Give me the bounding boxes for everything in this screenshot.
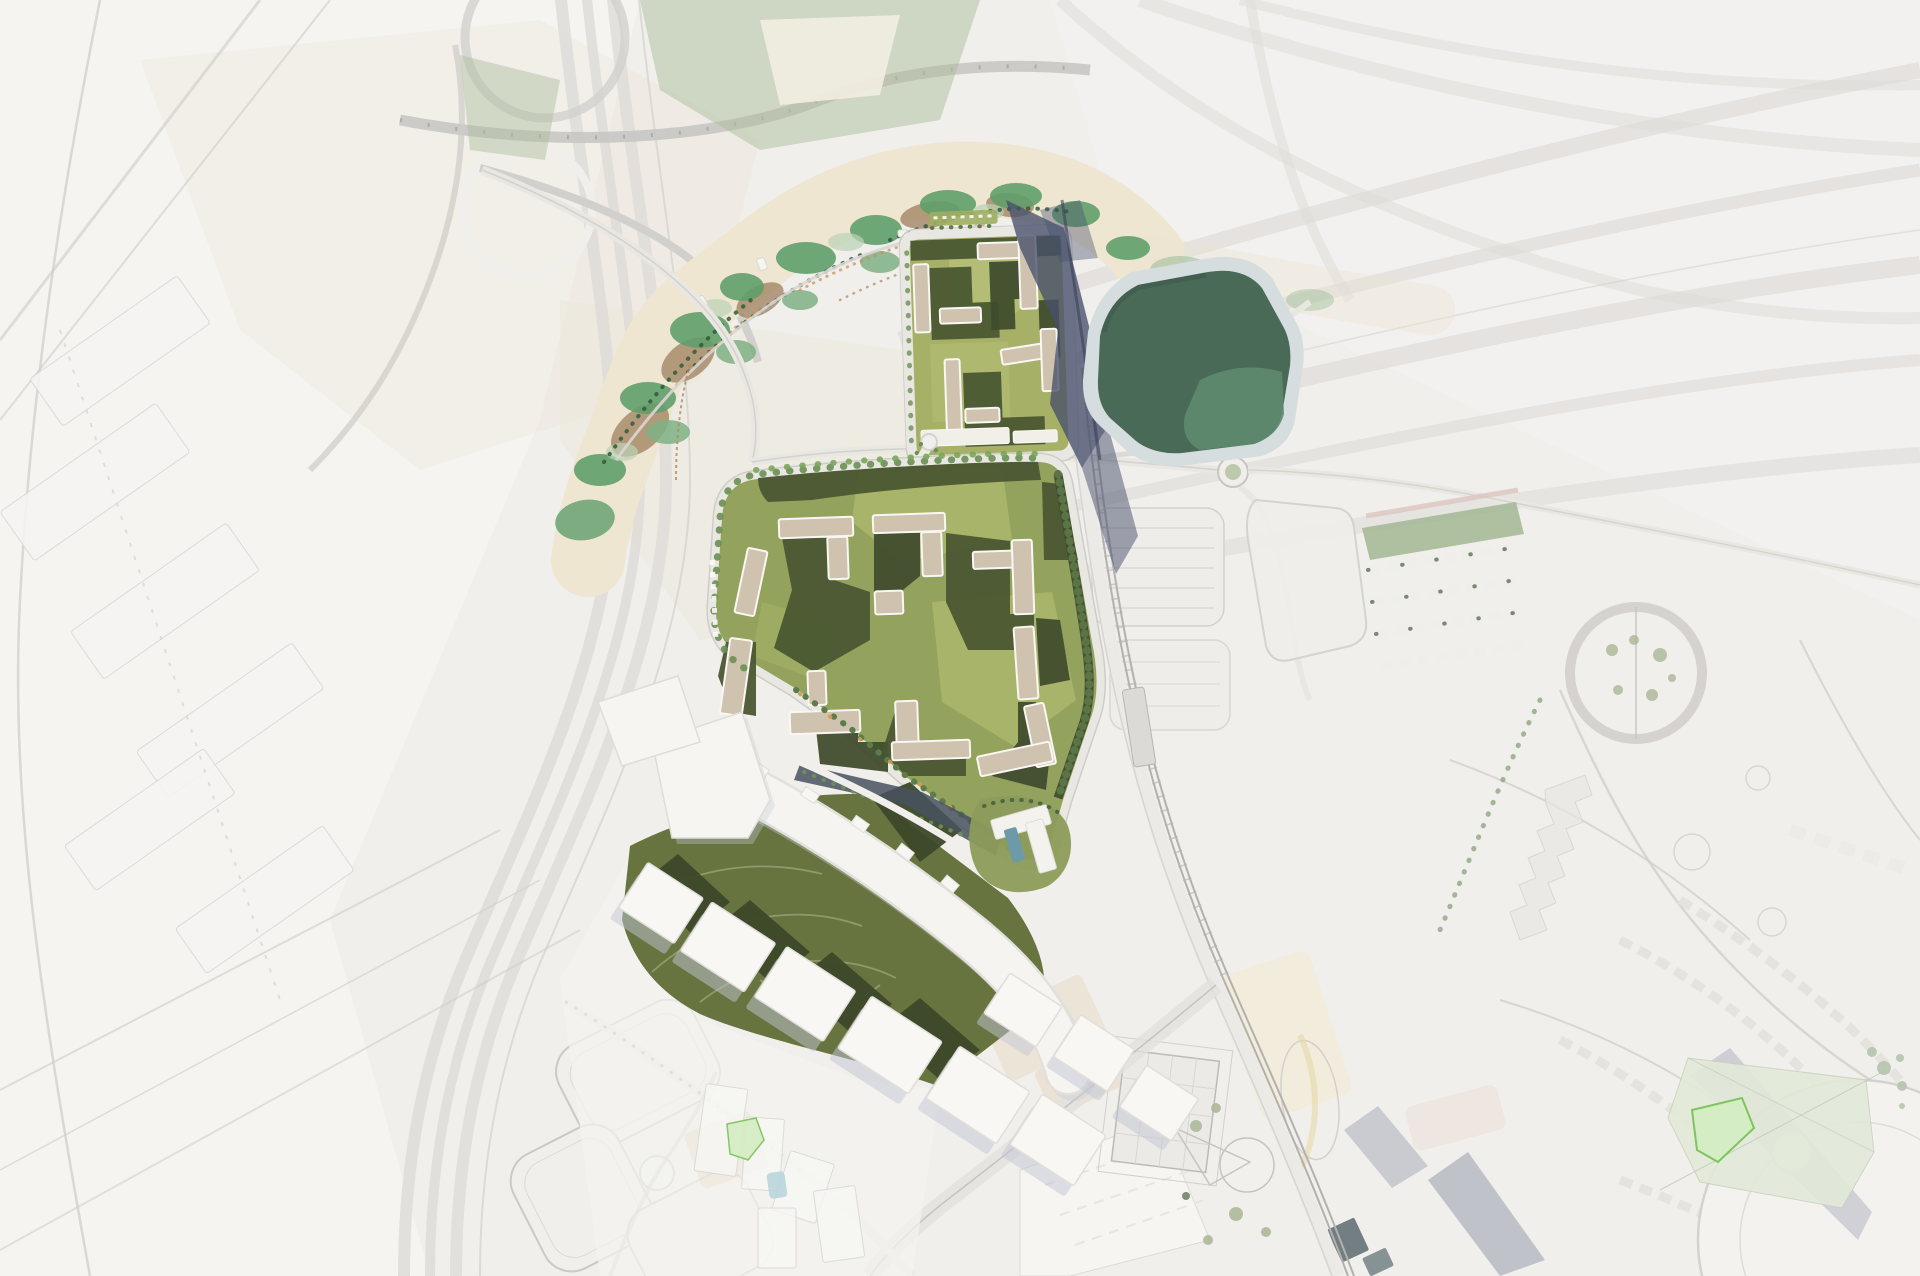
building-footprint bbox=[913, 264, 930, 332]
building-footprint bbox=[779, 517, 854, 539]
building-footprint bbox=[758, 1208, 796, 1268]
podium-strip bbox=[1013, 430, 1057, 444]
circle-plaza bbox=[1220, 1138, 1274, 1192]
building-footprint bbox=[875, 591, 904, 615]
building-footprint bbox=[827, 537, 848, 580]
small-pool bbox=[766, 1171, 787, 1199]
masterplan-canvas bbox=[0, 0, 1920, 1276]
site-plan-svg bbox=[0, 0, 1920, 1276]
interchange-sand bbox=[760, 15, 900, 105]
building-footprint bbox=[965, 408, 999, 423]
building-footprint bbox=[892, 740, 971, 761]
pond bbox=[1083, 257, 1304, 466]
turnaround-loop bbox=[921, 434, 937, 450]
building-footprint bbox=[807, 671, 826, 706]
building-footprint bbox=[944, 359, 962, 434]
building-footprint bbox=[873, 513, 946, 534]
dropoff-loop bbox=[1247, 500, 1366, 661]
building-footprint bbox=[1012, 540, 1035, 615]
building-footprint bbox=[921, 532, 943, 577]
building-footprint bbox=[1014, 626, 1039, 699]
roundabout-green bbox=[1225, 464, 1241, 480]
building-footprint bbox=[940, 307, 981, 323]
